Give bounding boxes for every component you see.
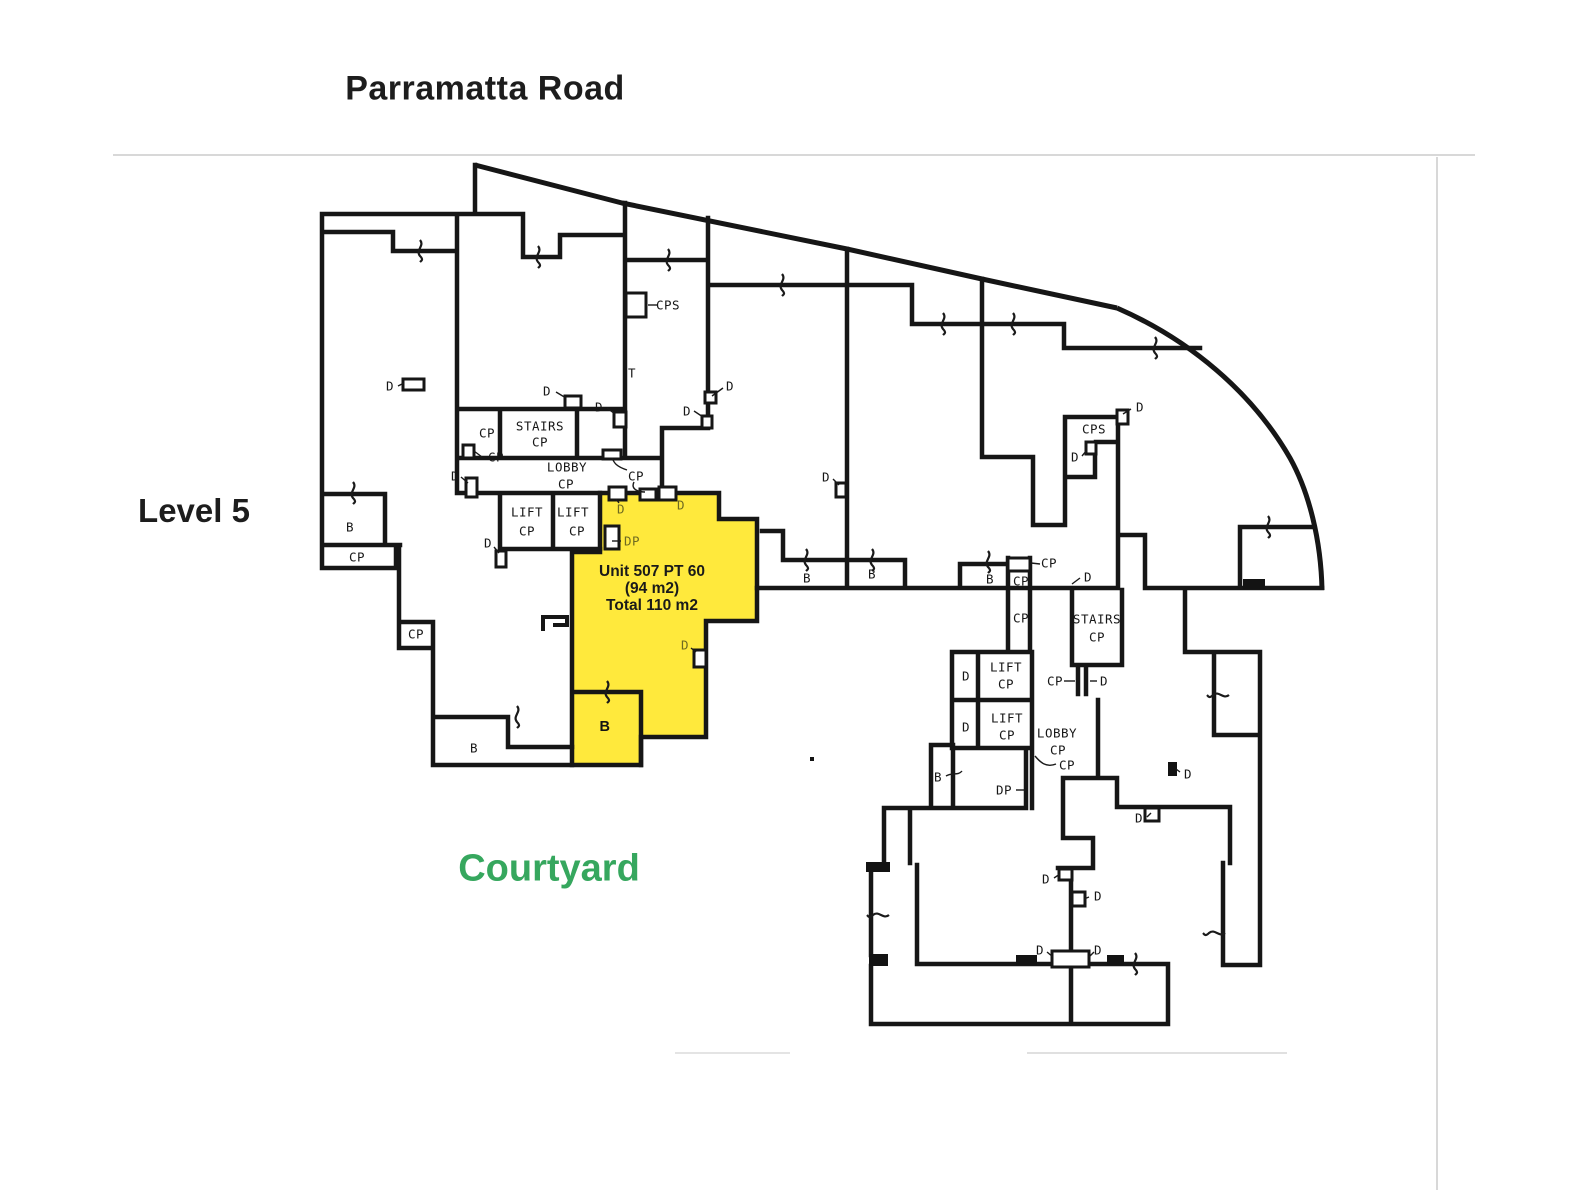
plan-label-d: D <box>1136 400 1144 415</box>
plan-label-d: D <box>683 404 691 419</box>
plan-label-cp: CP <box>1059 758 1075 773</box>
plan-label-d: D <box>386 379 394 394</box>
door-jamb <box>543 617 567 631</box>
plan-label-cp: CP <box>1013 611 1029 626</box>
level-label: Level 5 <box>138 492 250 530</box>
plan-label-cp: CP <box>558 477 574 492</box>
plan-label-cp: CP <box>999 728 1015 743</box>
road-label: Parramatta Road <box>345 70 625 109</box>
plan-label-cp: CP <box>479 426 495 441</box>
plan-label-d: D <box>484 536 492 551</box>
plan-label-d: D <box>595 400 603 415</box>
plan-label-d: D <box>543 384 551 399</box>
plan-label-b: B <box>470 741 478 756</box>
floor-plan-drawing <box>0 0 1570 1190</box>
unit-507-name: Unit 507 PT 60 <box>599 563 705 580</box>
plan-label-cp: CP <box>349 550 365 565</box>
plan-label-d: D <box>1135 811 1143 826</box>
unit-507-info: Unit 507 PT 60 (94 m2) Total 110 m2 <box>599 563 705 614</box>
plan-label-d: D <box>726 379 734 394</box>
plan-label-cp: CP <box>998 677 1014 692</box>
plan-label-lift: LIFT <box>990 660 1022 675</box>
plan-label-d: D <box>451 469 459 484</box>
plan-label-d: D <box>1036 943 1044 958</box>
plan-label-dp: DP <box>624 534 640 549</box>
plan-label-d: D <box>1094 889 1102 904</box>
plan-label-cp: CP <box>1089 630 1105 645</box>
plan-label-cp: CP <box>408 627 424 642</box>
plan-label-b: B <box>986 572 994 587</box>
plan-label-t: T <box>628 366 636 381</box>
plan-label-cp: CP <box>532 435 548 450</box>
plan-label-b: B <box>346 520 354 535</box>
plan-label-cp: CP <box>1013 574 1029 589</box>
plan-label-d: D <box>1100 674 1108 689</box>
plan-label-d: D <box>1042 872 1050 887</box>
plan-label-stairs: STAIRS <box>516 419 564 434</box>
plan-label-d: D <box>1084 570 1092 585</box>
plan-label-d: D <box>962 669 970 684</box>
plan-label-cp: CP <box>628 469 644 484</box>
floor-plan-page: Parramatta Road Level 5 Courtyard Unit 5… <box>0 0 1570 1190</box>
plan-label-d: D <box>962 720 970 735</box>
plan-label-b: B <box>600 719 611 735</box>
plan-label-lift: LIFT <box>557 505 589 520</box>
plan-label-cp: CP <box>488 450 504 465</box>
plan-label-d: D <box>617 502 625 517</box>
plan-label-dp: DP <box>996 783 1012 798</box>
plan-label-cp: CP <box>519 524 535 539</box>
plan-label-lift: LIFT <box>991 711 1023 726</box>
solid-door-marks <box>810 579 1265 966</box>
plan-label-d: D <box>681 638 689 653</box>
plan-label-cps: CPS <box>656 298 680 313</box>
plan-label-b: B <box>803 571 811 586</box>
plan-label-cp: CP <box>569 524 585 539</box>
plan-label-b: B <box>934 770 942 785</box>
courtyard-label: Courtyard <box>458 848 640 891</box>
plan-label-d: D <box>822 470 830 485</box>
plan-label-b: B <box>868 567 876 582</box>
plan-label-lobby: LOBBY <box>1037 726 1077 741</box>
faint-guide-lines <box>113 155 1475 1190</box>
plan-label-d: D <box>1184 767 1192 782</box>
plan-label-stairs: STAIRS <box>1073 612 1121 627</box>
plan-label-d: D <box>677 498 685 513</box>
walls <box>322 165 1322 1024</box>
plan-label-cp: CP <box>1050 743 1066 758</box>
plan-label-cp: CP <box>1041 556 1057 571</box>
plan-label-d: D <box>1094 943 1102 958</box>
plan-label-d: D <box>1071 450 1079 465</box>
unit-507-area: (94 m2) <box>599 580 705 597</box>
plan-label-lift: LIFT <box>511 505 543 520</box>
plan-label-lobby: LOBBY <box>547 460 587 475</box>
plan-label-cps: CPS <box>1082 422 1106 437</box>
plan-label-cp: CP <box>1047 674 1063 689</box>
unit-507-total: Total 110 m2 <box>599 597 705 614</box>
